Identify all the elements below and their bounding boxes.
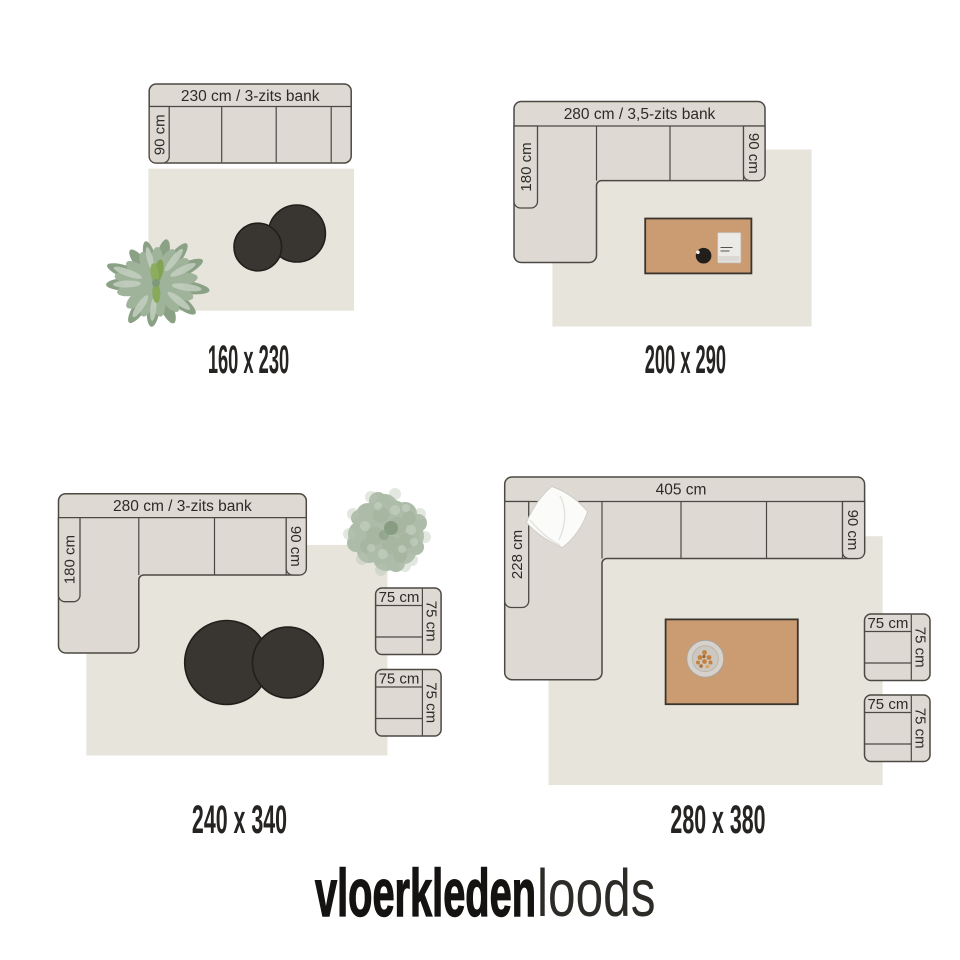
- svg-text:280 cm / 3-zits bank: 280 cm / 3-zits bank: [113, 498, 252, 515]
- svg-text:vloerkleden: vloerkleden: [315, 856, 536, 931]
- svg-text:90 cm: 90 cm: [844, 510, 861, 551]
- svg-text:loods: loods: [537, 856, 656, 931]
- svg-text:90 cm: 90 cm: [152, 114, 169, 155]
- svg-text:230 cm / 3-zits bank: 230 cm / 3-zits bank: [181, 88, 320, 105]
- svg-text:160 x 230: 160 x 230: [208, 337, 289, 382]
- svg-text:405 cm: 405 cm: [656, 482, 707, 499]
- svg-text:240 x 340: 240 x 340: [192, 797, 287, 842]
- svg-text:90 cm: 90 cm: [745, 133, 762, 174]
- svg-text:280 cm / 3,5-zits bank: 280 cm / 3,5-zits bank: [564, 106, 716, 123]
- svg-text:180 cm: 180 cm: [62, 535, 79, 584]
- svg-text:228 cm: 228 cm: [509, 530, 526, 579]
- svg-text:200 x 290: 200 x 290: [645, 337, 726, 382]
- svg-text:180 cm: 180 cm: [518, 142, 535, 191]
- svg-text:280 x 380: 280 x 380: [670, 797, 765, 842]
- svg-text:90 cm: 90 cm: [287, 526, 304, 567]
